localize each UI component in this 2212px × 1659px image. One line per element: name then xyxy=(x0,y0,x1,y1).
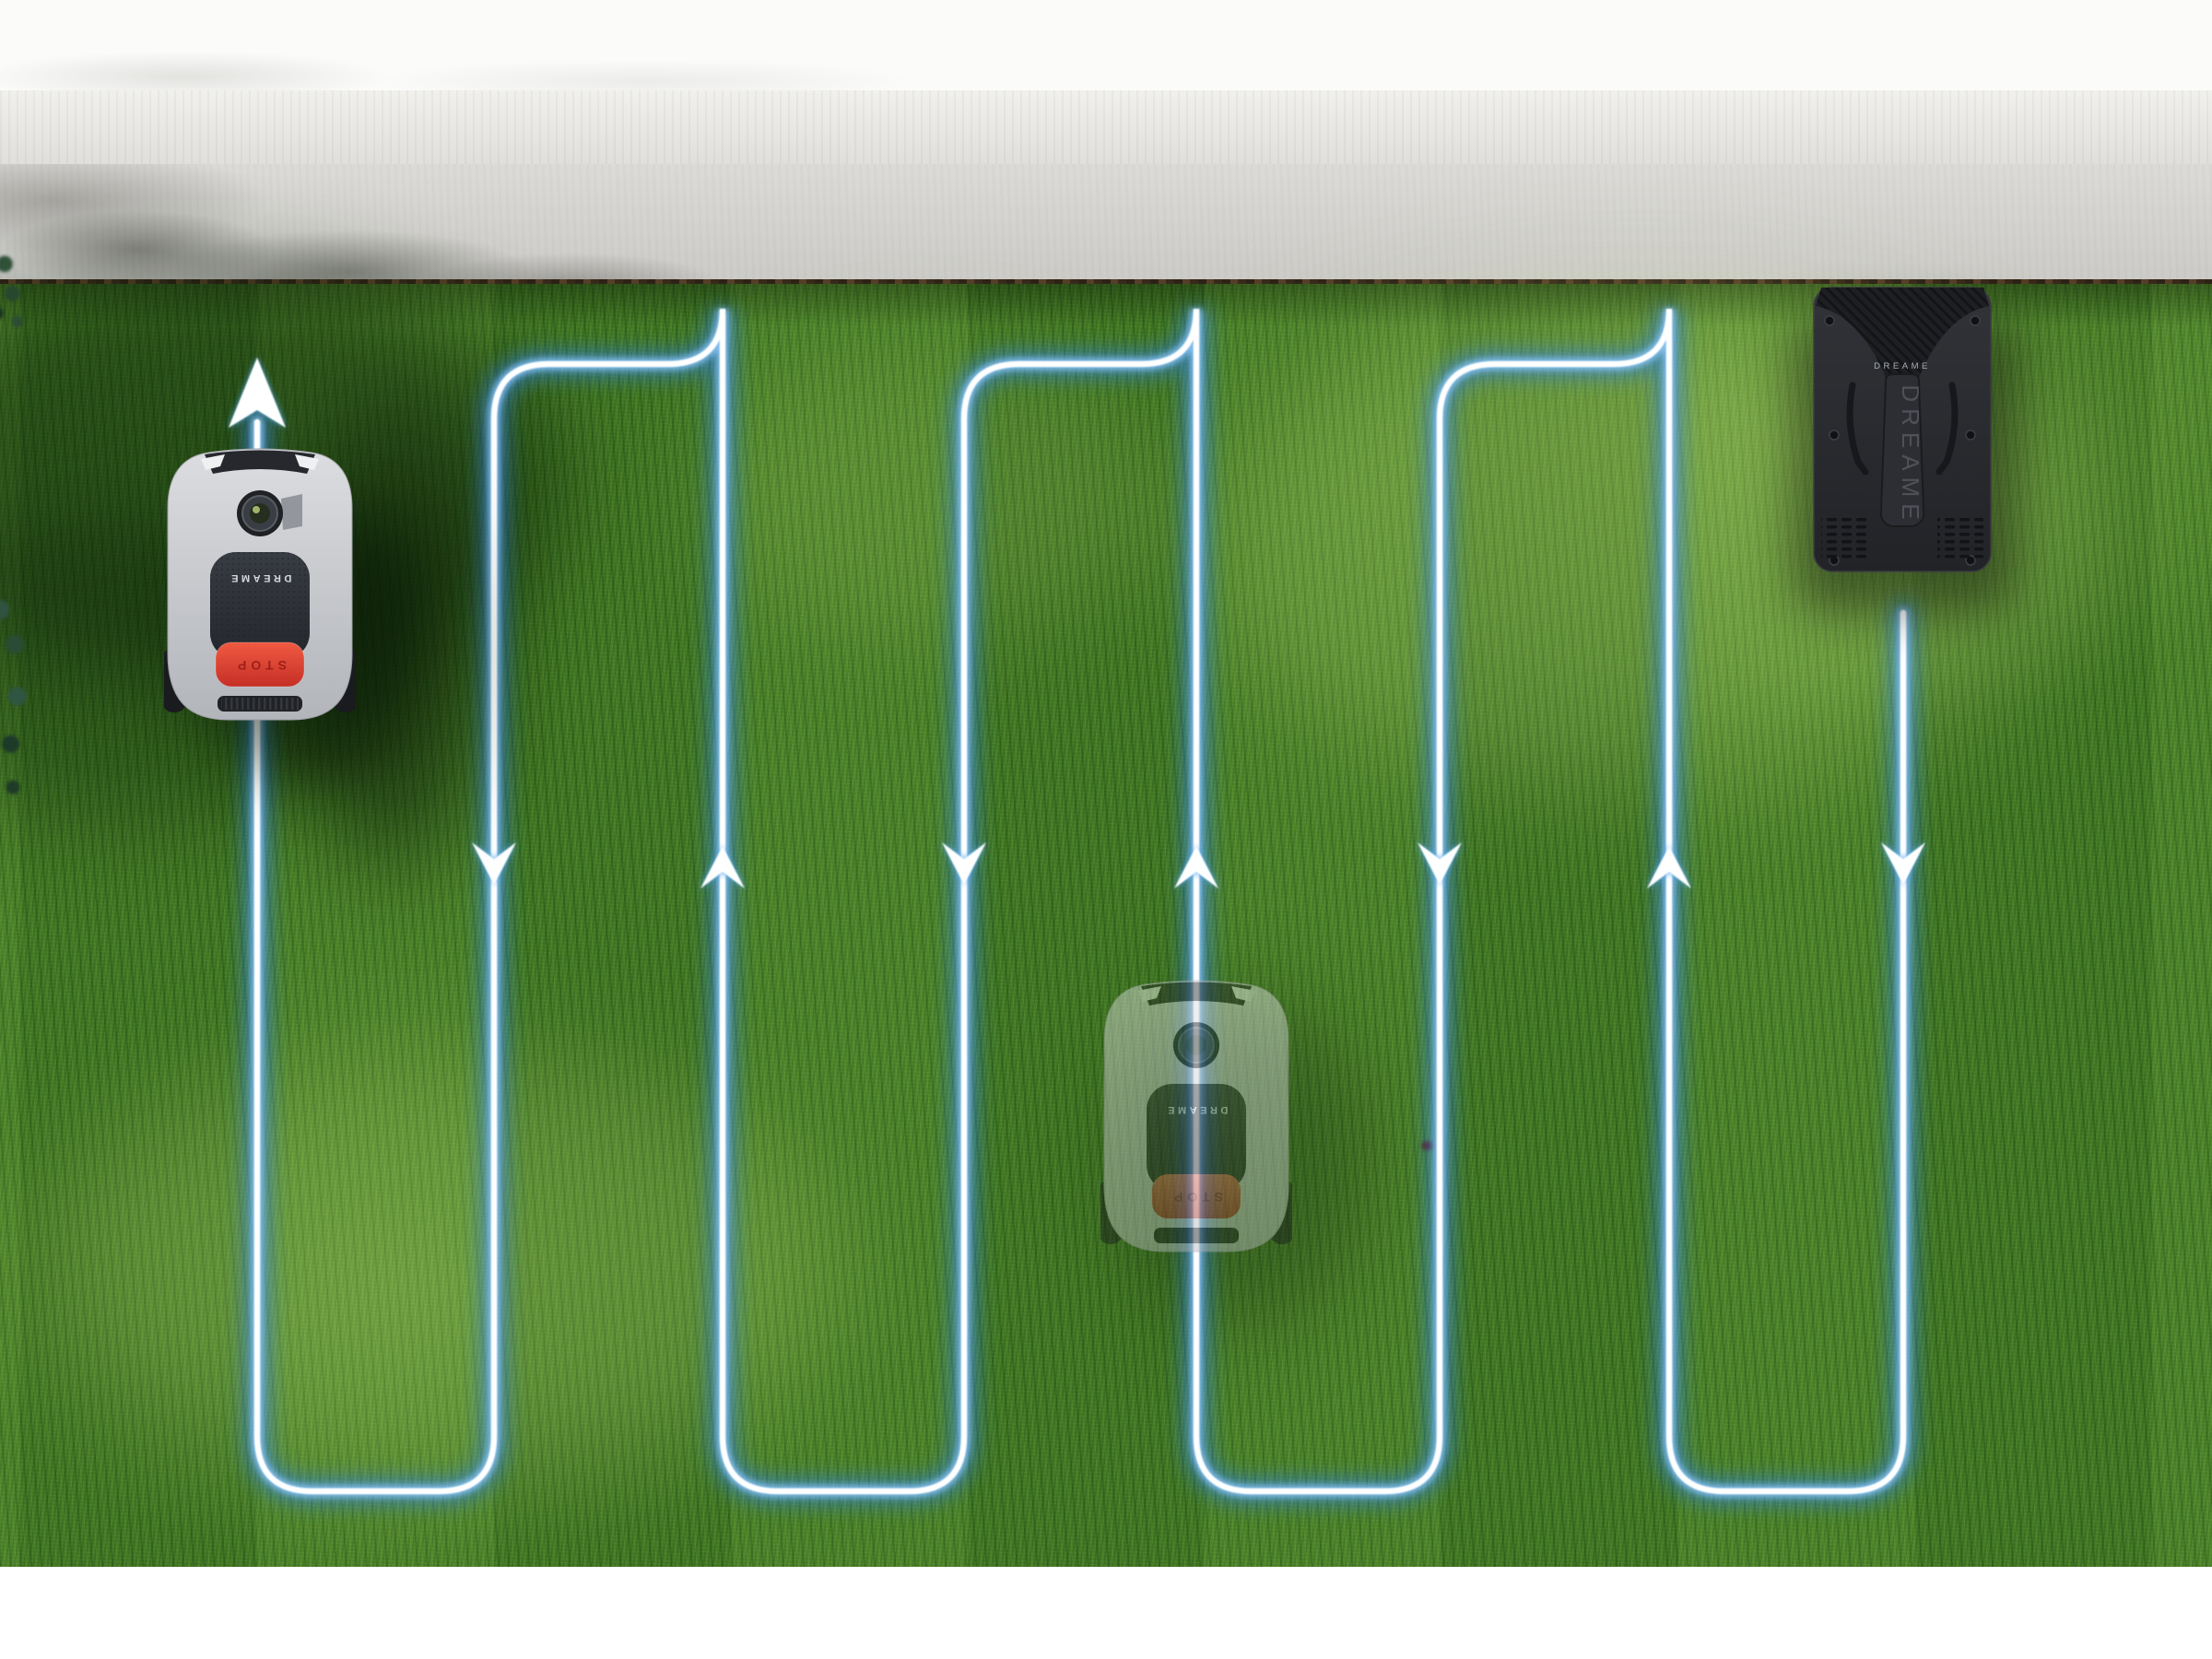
ghost-camera xyxy=(1173,1022,1219,1068)
ghost-rear-grille xyxy=(1154,1228,1239,1243)
dock-svg: DREAME DREAME xyxy=(1812,282,1993,577)
ghost-mower-svg: DREAME STOP xyxy=(1100,977,1292,1258)
dock-vent-right xyxy=(1937,518,1983,562)
dock-vertical-brand: DREAME xyxy=(1897,384,1924,525)
mower-svg: DREAME STOP xyxy=(164,445,356,726)
mower-grille-ribs xyxy=(221,698,299,710)
robot-mower: DREAME STOP xyxy=(164,445,356,726)
dock-vent-left xyxy=(1821,518,1867,562)
mowing-route xyxy=(0,0,2212,1659)
ghost-brand-label: DREAME xyxy=(1165,1104,1229,1115)
ghost-mower: DREAME STOP xyxy=(1100,977,1292,1258)
mower-brand-label: DREAME xyxy=(229,572,292,583)
dock-brand-label: DREAME xyxy=(1874,361,1931,371)
scene: DREAME DREAME xyxy=(0,0,2212,1659)
ghost-stop-label: STOP xyxy=(1170,1190,1223,1205)
mower-stop-label: STOP xyxy=(233,658,287,673)
mower-camera xyxy=(237,490,283,536)
route-outer-glow xyxy=(257,309,1903,1491)
charging-dock: DREAME DREAME xyxy=(1812,282,1993,577)
mower-camera-tab xyxy=(281,494,302,530)
bottom-margin xyxy=(0,1567,2212,1659)
